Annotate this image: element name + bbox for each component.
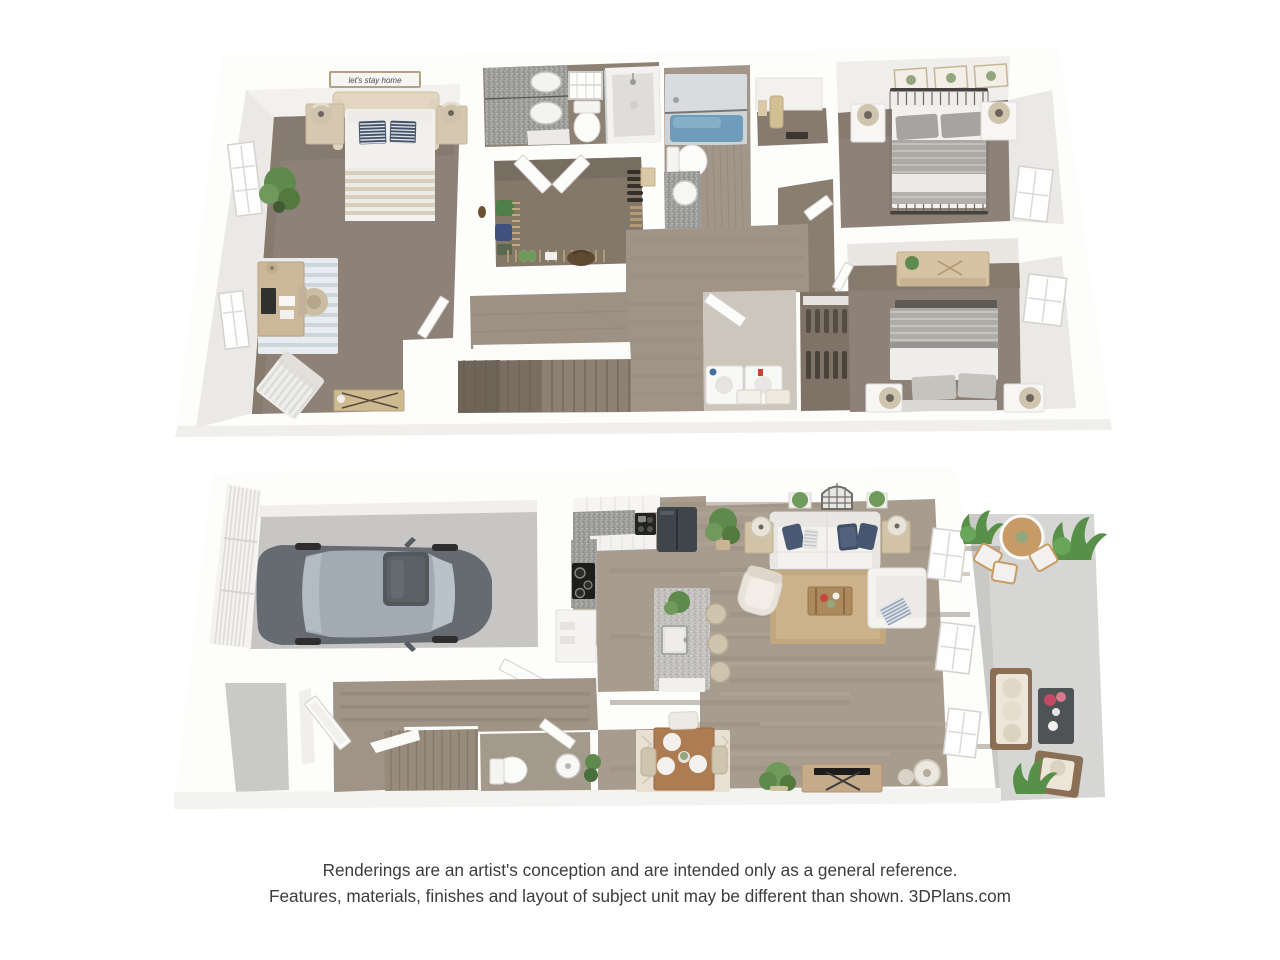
svg-text:Renderings are an artist's con: Renderings are an artist's conception an… (323, 860, 958, 880)
svg-text:Features, materials, finishes: Features, materials, finishes and layout… (269, 886, 1011, 906)
svg-text:let's stay home: let's stay home (348, 76, 402, 85)
